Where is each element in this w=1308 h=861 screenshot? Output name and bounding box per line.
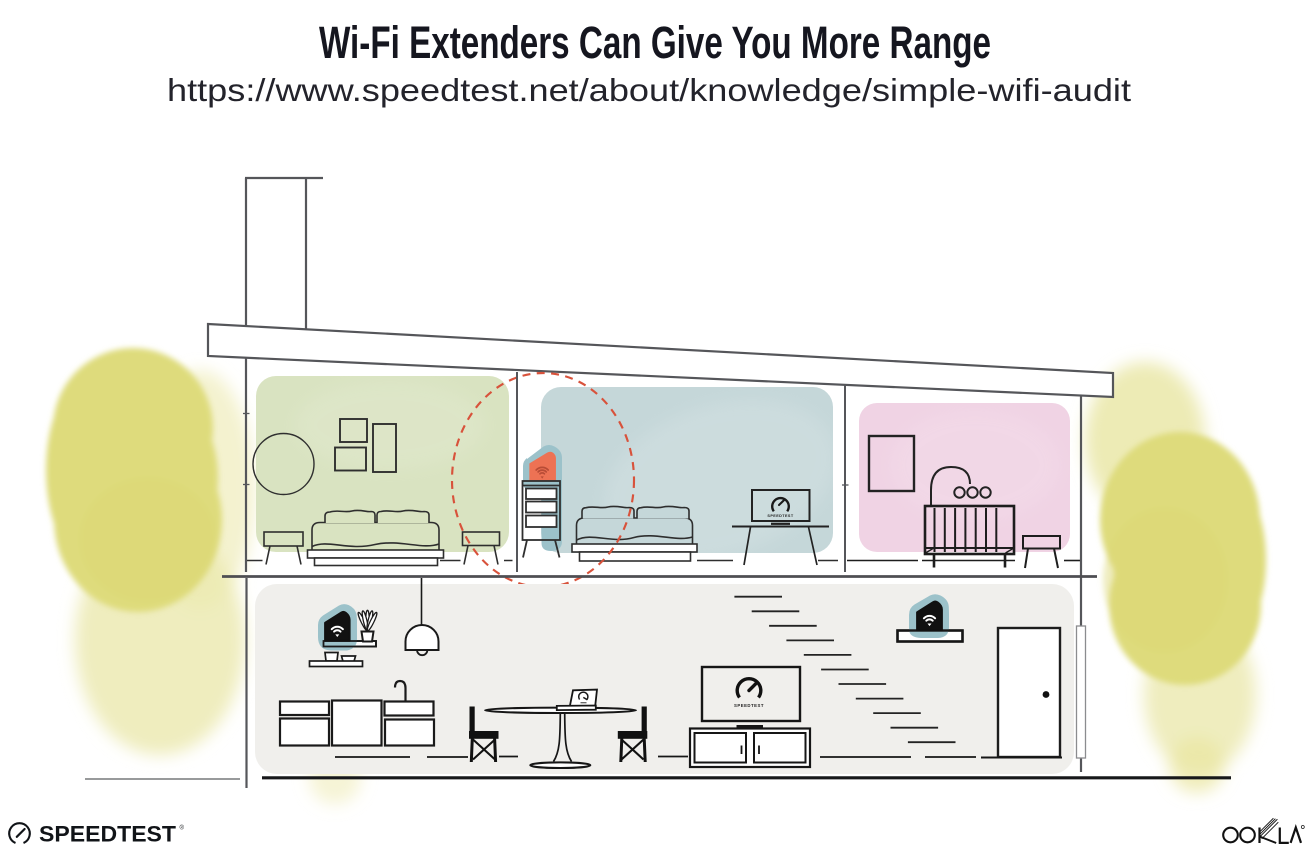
svg-text:®: ®	[180, 825, 185, 832]
svg-text:Wi-Fi Extenders Can Give You M: Wi-Fi Extenders Can Give You More Range	[319, 17, 991, 68]
svg-text:SPEEDTEST: SPEEDTEST	[767, 514, 793, 518]
svg-text:SPEEDTEST: SPEEDTEST	[734, 703, 764, 708]
svg-text:SPEEDTEST: SPEEDTEST	[39, 822, 176, 847]
svg-text:https://www.speedtest.net/abou: https://www.speedtest.net/about/knowledg…	[167, 72, 1131, 108]
